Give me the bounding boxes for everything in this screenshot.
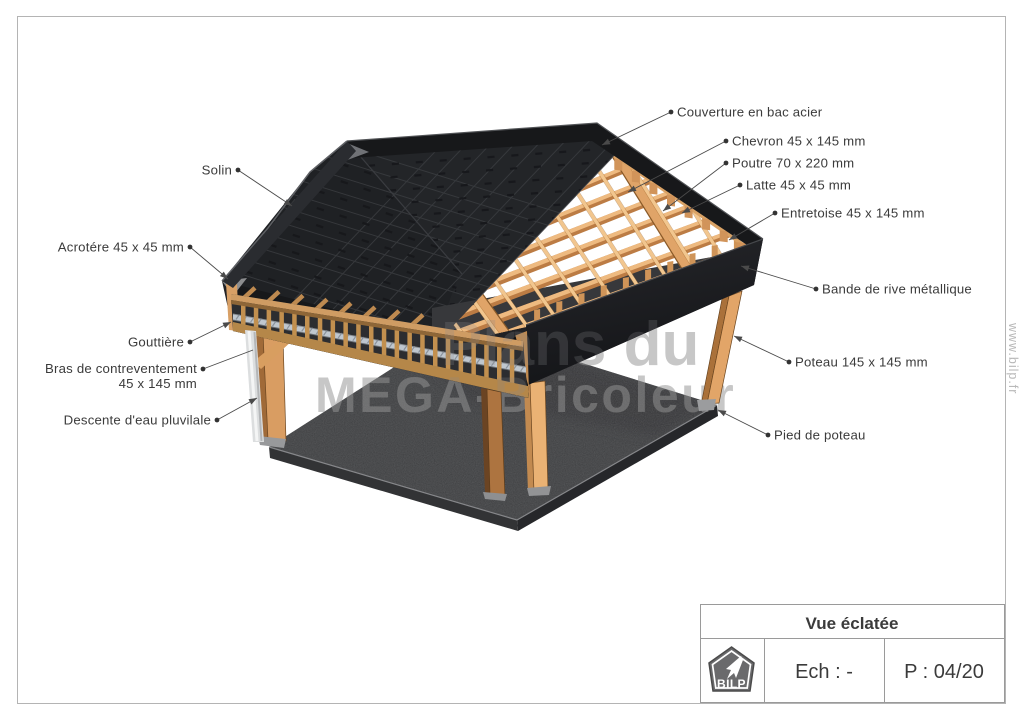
svg-text:Poteau 145 x 145 mm: Poteau 145 x 145 mm xyxy=(795,355,928,370)
svg-text:Pied de poteau: Pied de poteau xyxy=(774,428,866,443)
svg-text:Bras de contreventement: Bras de contreventement xyxy=(45,361,197,376)
svg-text:Chevron 45 x 145 mm: Chevron 45 x 145 mm xyxy=(732,134,866,149)
svg-text:www.bilp.fr: www.bilp.fr xyxy=(1006,322,1020,394)
svg-text:Descente d'eau pluvilale: Descente d'eau pluvilale xyxy=(64,413,211,428)
svg-text:Vue éclatée: Vue éclatée xyxy=(806,614,899,633)
svg-text:Ech : -: Ech : - xyxy=(795,661,853,683)
svg-text:BILP: BILP xyxy=(717,677,746,691)
svg-text:Entretoise 45 x 145 mm: Entretoise 45 x 145 mm xyxy=(781,206,925,221)
svg-text:Poutre 70 x 220 mm: Poutre 70 x 220 mm xyxy=(732,156,854,171)
svg-text:45 x 145 mm: 45 x 145 mm xyxy=(119,376,197,391)
svg-text:Couverture en bac acier: Couverture en bac acier xyxy=(677,105,823,120)
svg-text:P : 04/20: P : 04/20 xyxy=(904,661,984,683)
svg-text:Gouttière: Gouttière xyxy=(128,335,184,350)
svg-text:Acrotére 45 x 45 mm: Acrotére 45 x 45 mm xyxy=(58,240,184,255)
svg-text:Solin: Solin xyxy=(202,163,232,178)
svg-text:Bande de rive métallique: Bande de rive métallique xyxy=(822,282,972,297)
svg-text:Latte 45 x 45 mm: Latte 45 x 45 mm xyxy=(746,178,851,193)
